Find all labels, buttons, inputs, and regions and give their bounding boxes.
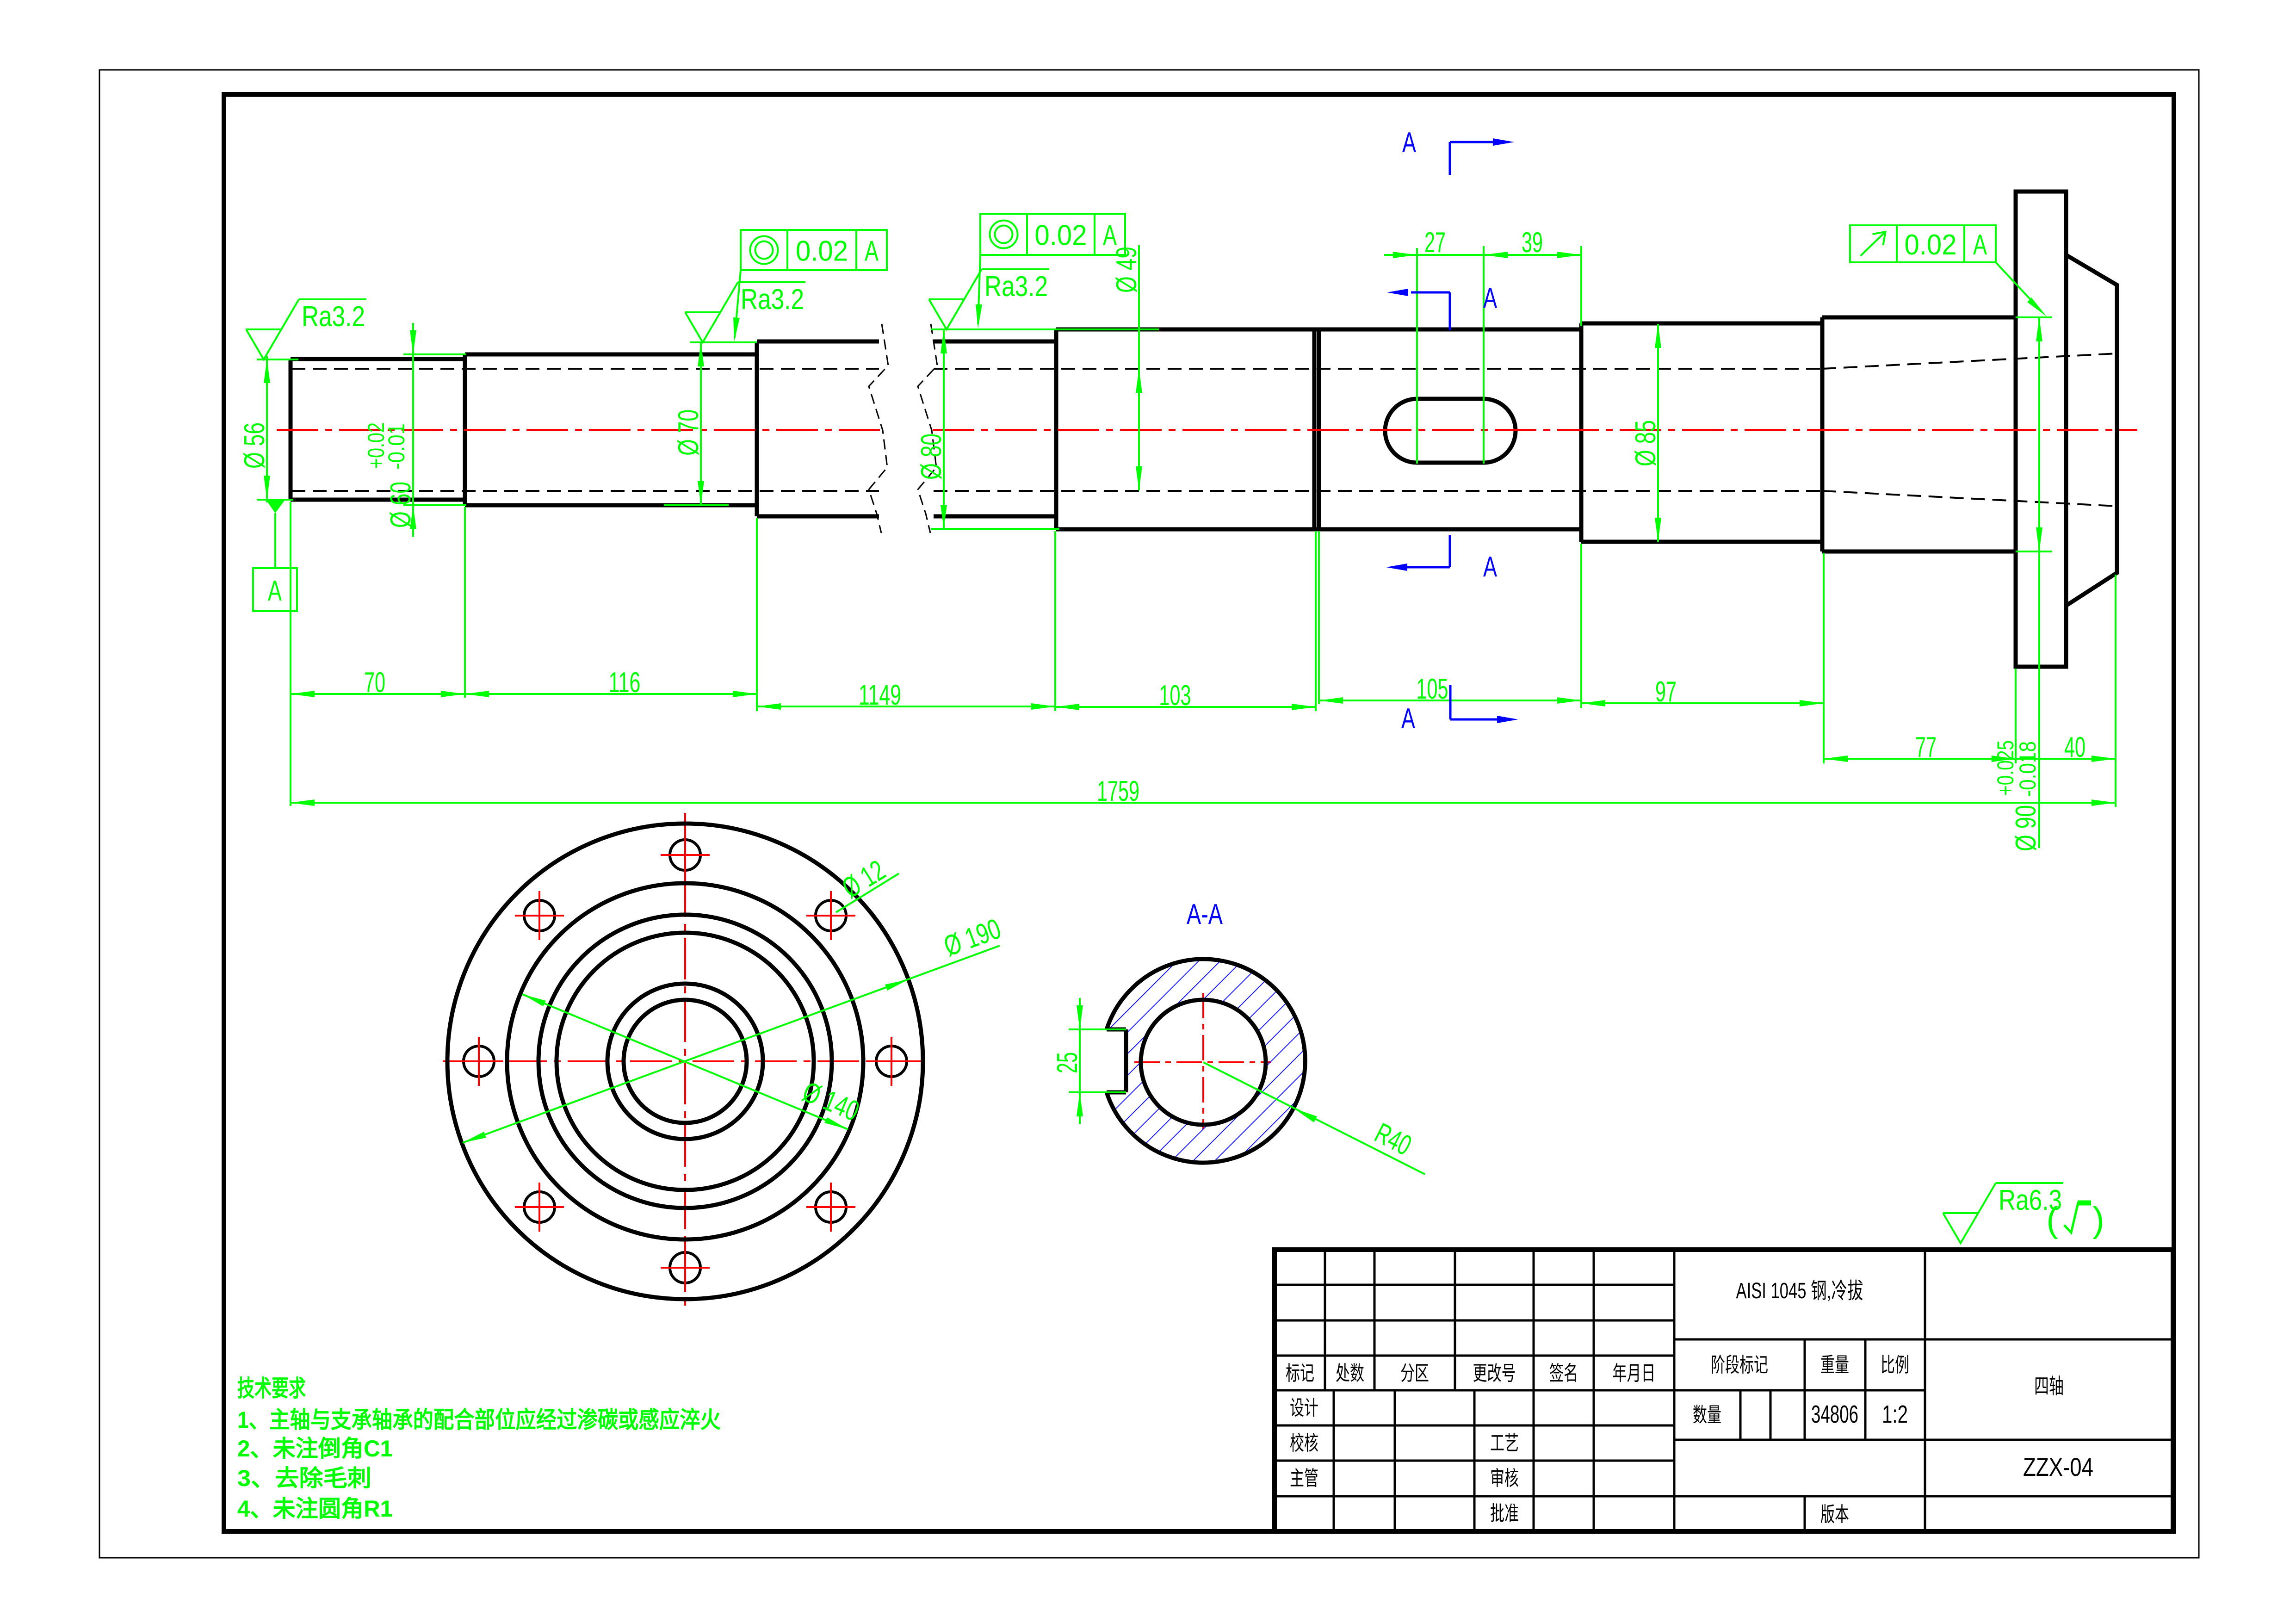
svg-text:): ) [2092,1200,2104,1239]
svg-text:3、去除毛刺: 3、去除毛刺 [237,1465,371,1491]
svg-text:A-A: A-A [1187,898,1223,930]
svg-text:0.02: 0.02 [796,235,848,267]
svg-text:更改号: 更改号 [1473,1362,1516,1385]
svg-text:34806: 34806 [1811,1400,1858,1428]
svg-text:分区: 分区 [1400,1362,1429,1385]
svg-text:-0.01: -0.01 [384,423,409,470]
svg-text:年月日: 年月日 [1613,1362,1656,1385]
svg-text:103: 103 [1159,680,1191,712]
svg-text:70: 70 [364,667,385,699]
svg-text:工艺: 工艺 [1490,1432,1519,1455]
svg-text:处数: 处数 [1336,1362,1364,1385]
svg-text:审核: 审核 [1490,1467,1519,1490]
svg-text:A: A [1402,127,1416,159]
svg-text:校核: 校核 [1290,1432,1318,1455]
svg-text:4、未注圆角R1: 4、未注圆角R1 [237,1496,393,1522]
svg-text:阶段标记: 阶段标记 [1711,1354,1768,1376]
svg-text:Ra3.2: Ra3.2 [741,284,804,316]
svg-text:27: 27 [1424,227,1446,259]
svg-text:116: 116 [609,667,641,699]
svg-text:Ø 49: Ø 49 [1111,247,1143,293]
svg-text:版本: 版本 [1820,1503,1849,1526]
svg-text:签名: 签名 [1549,1362,1578,1385]
svg-text:标记: 标记 [1286,1362,1314,1385]
svg-text:A: A [1401,703,1415,735]
svg-text:Ø 70: Ø 70 [673,409,705,456]
svg-text:重量: 重量 [1820,1354,1849,1376]
svg-text:77: 77 [1915,731,1937,763]
svg-text:Ra3.2: Ra3.2 [302,301,365,333]
svg-text:主管: 主管 [1290,1467,1318,1490]
svg-text:39: 39 [1522,227,1543,259]
svg-text:Ø 60: Ø 60 [385,482,417,528]
svg-text:25: 25 [1052,1052,1083,1073]
svg-text:Ra3.2: Ra3.2 [984,271,1048,303]
svg-text:AISI 1045 钢,冷拔: AISI 1045 钢,冷拔 [1736,1279,1863,1303]
svg-text:97: 97 [1655,676,1677,708]
svg-text:Ø 90: Ø 90 [2010,805,2042,851]
svg-text:-0.018: -0.018 [2015,741,2041,797]
svg-text:批准: 批准 [1490,1502,1519,1525]
svg-text:A: A [1973,229,1987,261]
svg-text:四轴: 四轴 [2034,1374,2064,1398]
svg-text:A: A [1483,282,1497,314]
svg-text:ZZX-04: ZZX-04 [2023,1452,2093,1481]
svg-text:A: A [865,235,879,267]
svg-text:Ø 80: Ø 80 [916,434,947,480]
svg-text:105: 105 [1417,673,1448,705]
svg-text:1149: 1149 [859,679,901,711]
svg-text:比例: 比例 [1881,1354,1909,1376]
svg-text:1:2: 1:2 [1882,1400,1908,1428]
svg-text:0.02: 0.02 [1905,229,1957,261]
svg-text:技术要求: 技术要求 [237,1375,306,1401]
svg-text:A: A [1103,220,1117,252]
svg-text:1759: 1759 [1097,775,1139,807]
svg-text:(: ( [2046,1200,2058,1239]
svg-text:A: A [1483,551,1497,583]
svg-text:2、未注倒角C1: 2、未注倒角C1 [237,1436,393,1462]
svg-text:Ø 56: Ø 56 [239,422,271,469]
svg-text:设计: 设计 [1290,1397,1318,1419]
svg-text:数量: 数量 [1693,1404,1721,1426]
svg-text:Ø 85: Ø 85 [1630,420,1662,466]
svg-text:0.02: 0.02 [1035,220,1087,252]
svg-text:1、主轴与支承轴承的配合部位应经过渗碳或感应淬火: 1、主轴与支承轴承的配合部位应经过渗碳或感应淬火 [237,1407,721,1433]
svg-text:40: 40 [2064,731,2086,763]
svg-text:A: A [268,575,282,607]
